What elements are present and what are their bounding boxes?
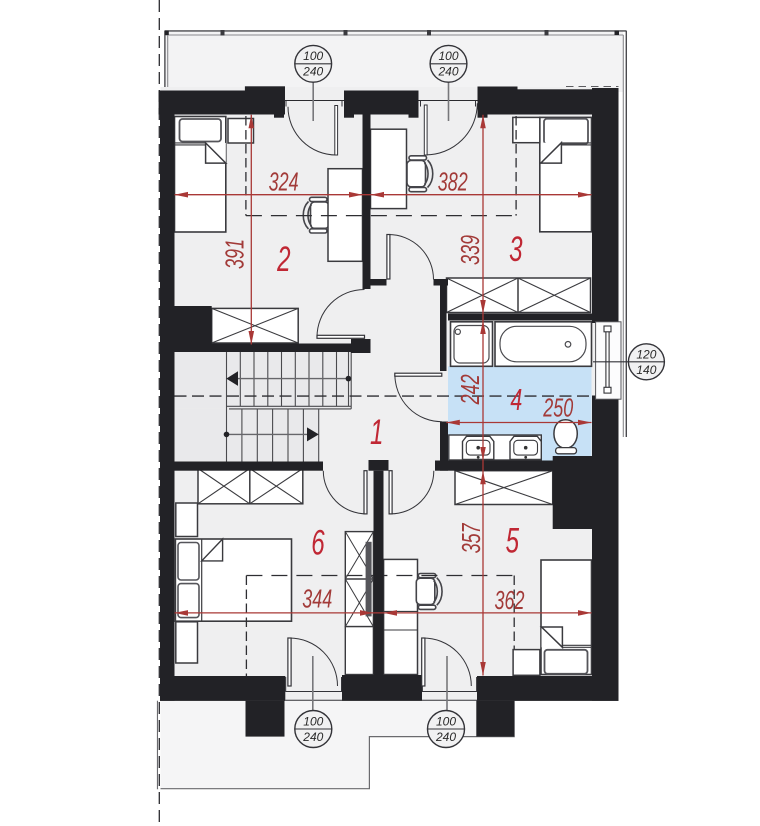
svg-text:140: 140 [636, 363, 656, 377]
svg-text:120: 120 [636, 347, 656, 361]
svg-text:344: 344 [302, 584, 332, 613]
svg-text:242: 242 [456, 374, 485, 405]
svg-text:3: 3 [509, 231, 523, 269]
svg-text:250: 250 [542, 393, 573, 422]
svg-text:1: 1 [370, 414, 383, 452]
svg-text:5: 5 [506, 522, 520, 560]
svg-text:100: 100 [303, 49, 323, 63]
svg-text:240: 240 [302, 730, 323, 744]
svg-text:382: 382 [438, 167, 468, 196]
svg-text:240: 240 [302, 65, 323, 79]
svg-text:2: 2 [276, 241, 290, 279]
svg-text:362: 362 [495, 586, 525, 615]
svg-text:240: 240 [435, 730, 456, 744]
svg-text:6: 6 [311, 524, 325, 562]
svg-text:100: 100 [438, 49, 458, 63]
svg-text:324: 324 [269, 167, 299, 196]
svg-text:100: 100 [303, 714, 323, 728]
svg-text:100: 100 [436, 714, 456, 728]
svg-text:357: 357 [457, 522, 486, 553]
svg-text:339: 339 [456, 235, 485, 265]
svg-text:240: 240 [437, 65, 458, 79]
svg-text:4: 4 [510, 382, 522, 417]
svg-text:391: 391 [220, 239, 249, 269]
